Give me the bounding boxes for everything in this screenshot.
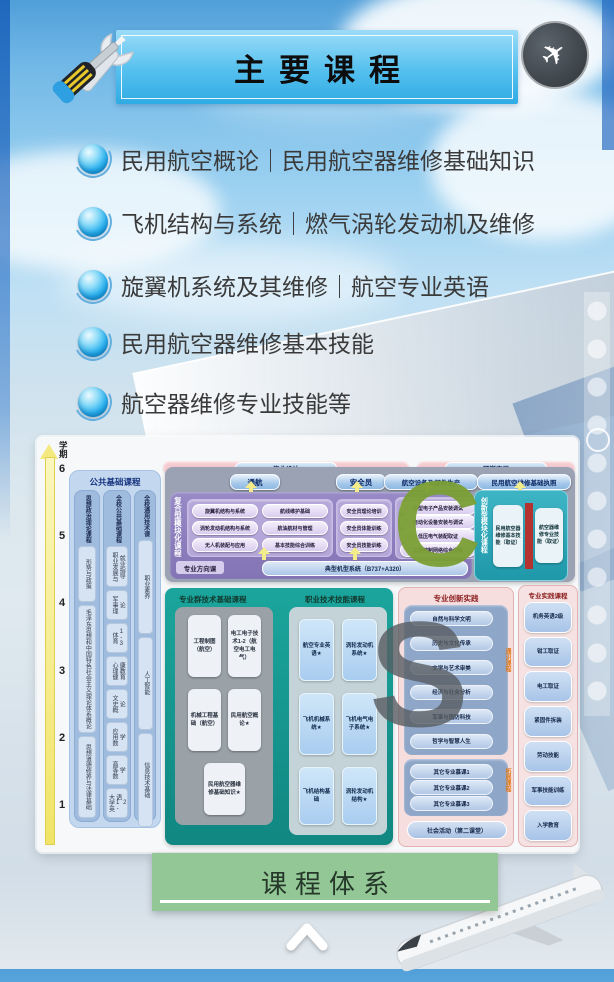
tech-skills-panel: 专业群技术基础课程 职业技术技能课程 工程制图（航空） 电工电子技术1-2（航空… xyxy=(165,588,393,845)
course-pill: 涡轮发动机结构与系统 xyxy=(192,521,258,535)
dot-decoration-strip xyxy=(584,292,610,716)
page: { "header": { "title": "主要课程" }, "course… xyxy=(0,0,614,969)
chevron-up-icon[interactable] xyxy=(283,918,331,956)
left-edge-strip xyxy=(0,0,10,540)
course-pill: 自动化设备安装与调试 xyxy=(400,515,476,529)
course-item: 飞机结构与系统｜燃气涡轮发动机及维修 xyxy=(78,200,535,244)
course-box: 大学英语1-2 xyxy=(106,788,127,818)
orb-bullet-icon xyxy=(78,327,108,357)
red-divider xyxy=(525,503,533,569)
course-box: 民用航空器维修基础知识★ xyxy=(204,763,245,815)
direction-label: 专业方向课 xyxy=(176,561,224,574)
orb-bullet-icon xyxy=(78,270,108,300)
axis-tick: 1 xyxy=(56,799,68,811)
course-box: 飞机结构基础 xyxy=(299,767,334,825)
course-pill: 哲学与智慧人生 xyxy=(410,734,493,749)
direction-course: 典型机型系统（B737+A320） xyxy=(262,561,468,576)
panel-title: 创新型模块化课程 xyxy=(479,497,487,574)
tech-basic-subpanel: 工程制图（航空） 电工电子技术1-2（航空电工电气） 机械工程基础（航空） 民用… xyxy=(175,607,273,825)
course-pill: 自然与科学文明 xyxy=(410,611,493,626)
section-header-banner: 主要课程 xyxy=(116,30,518,104)
axis-tick: 6 xyxy=(56,463,68,475)
course-item: 旋翼机系统及其维修｜航空专业英语 xyxy=(78,263,489,307)
curriculum-diagram: 学期 654321 公共基础课程 思想政治理论课程 形势与政策毛泽东思想和中国特… xyxy=(37,437,578,852)
course-box: 入学教育 xyxy=(524,810,572,841)
course-box: 军事技能训练 xyxy=(524,776,572,807)
course-box: 毛泽东思想和中国特色社会主义理论体系概论 xyxy=(78,605,97,733)
general-courses-label: 通识课程 xyxy=(503,648,510,672)
course-label: 民用航空概论｜民用航空器维修基础知识 xyxy=(121,142,535,176)
course-pill: 文学与艺术审美 xyxy=(410,660,493,675)
course-box: 涡轮发动机系统★ xyxy=(342,619,377,681)
public-basic-panel: 公共基础课程 思想政治理论课程 形势与政策毛泽东思想和中国特色社会主义理论体系概… xyxy=(69,470,161,828)
course-pill: 其它专业慕课3 xyxy=(410,796,493,811)
arrow-up xyxy=(355,488,359,492)
course-box: 航空专业英语★ xyxy=(299,619,334,681)
course-pill: 低压电气装配取证 xyxy=(400,529,476,543)
course-pill: 旋翼机结构与系统 xyxy=(192,504,258,518)
course-pill: 无人机装配与应用 xyxy=(192,538,258,552)
course-box: 体育1-3 xyxy=(106,623,127,653)
course-pill: 航线维护基础 xyxy=(262,504,328,518)
course-box: 劳动技能 xyxy=(524,741,572,772)
panel-title: 专业实践课程 xyxy=(519,590,577,600)
course-label: 旋翼机系统及其维修｜航空专业英语 xyxy=(121,268,489,302)
course-box: 机械工程基础（航空） xyxy=(188,689,221,751)
course-pill: 经济与社会分析 xyxy=(410,685,493,700)
axis-label: 学期 xyxy=(58,441,68,458)
column-ideology: 思想政治理论课程 形势与政策毛泽东思想和中国特色社会主义理论体系概论思想道德修养… xyxy=(74,490,100,822)
course-pill: 安全员技能训练 xyxy=(340,538,388,552)
airplane-icon: ✈ xyxy=(536,36,574,75)
innovation-practice-panel: 专业创新实践 自然与科学文明历史与文化传承文学与艺术审美经济与社会分析军事与国防… xyxy=(398,587,514,847)
column-title: 全校公共基础课程 xyxy=(114,495,121,543)
panel-title: 专业创新实践 xyxy=(399,593,513,604)
cert-course: 航空器维修专业技能（取证） xyxy=(535,508,563,563)
arrow-up xyxy=(262,554,266,560)
course-pill: 安全员理论培训 xyxy=(340,504,388,518)
course-box: 形势与政策 xyxy=(78,546,97,602)
social-activity-pill: 社会活动（第二课堂） xyxy=(407,821,507,839)
course-box: 涡轮发动机结构★ xyxy=(342,767,377,825)
panel-title: 职业技术技能课程 xyxy=(305,594,365,605)
logo-badge[interactable]: ✈ xyxy=(521,21,589,89)
course-pill: 其它专业慕课2 xyxy=(410,780,493,795)
general-courses-group: 自然与科学文明历史与文化传承文学与艺术审美经济与社会分析军事与国防科技哲学与智慧… xyxy=(404,605,508,755)
composite-group-safety: 安全员理论培训安全员体能训练安全员技能训练 xyxy=(336,499,392,557)
course-box: 工程制图（航空） xyxy=(188,615,221,677)
course-system-button-label: 课程体系 xyxy=(261,864,397,901)
course-pill: 其它专业慕课1 xyxy=(410,764,493,779)
course-box: 电工电子技术1-2（航空电工电气） xyxy=(228,615,261,677)
practice-courses-list: 机务英语2级钳工取证电工取证紧固件拆装劳动技能军事技能训练入学教育 xyxy=(524,602,572,841)
column-general: 全校公共基础课程 职业发展与就业指导军事理论体育1-3心理健康教育文史概论应用数… xyxy=(103,490,132,822)
course-pill: 小型电子产品安装调试 xyxy=(400,501,476,515)
course-pill: 航油航材与管理 xyxy=(262,521,328,535)
composite-module-panel: 复合型模块化课程 旋翼机结构与系统涡轮发动机结构与系统无人机装配与应用 航线维护… xyxy=(170,492,472,579)
course-pill: 历史与文化传承 xyxy=(410,636,493,651)
innovation-module-panel: 创新型模块化课程 民用航空器维修基本技能（取证） 航空器维修专业技能（取证） xyxy=(474,490,568,581)
arrow-up xyxy=(425,488,429,492)
arrow-up xyxy=(249,488,253,492)
axis-tick: 2 xyxy=(56,732,68,744)
course-label: 民用航空器维修基本技能 xyxy=(121,325,374,359)
course-box: 心理健康教育 xyxy=(106,656,127,686)
cert-course: 民用航空器维修基本技能（取证） xyxy=(493,505,523,567)
course-box: 飞机电气电子系统★ xyxy=(342,693,377,755)
course-box: 机务英语2级 xyxy=(524,602,572,633)
public-basic-columns: 思想政治理论课程 形势与政策毛泽东思想和中国特色社会主义理论体系概论思想道德修养… xyxy=(74,490,156,822)
course-box: 军事理论 xyxy=(106,590,127,620)
course-item: 民用航空概论｜民用航空器维修基础知识 xyxy=(78,137,535,181)
button-underline xyxy=(160,900,490,903)
axis-arrow xyxy=(45,457,55,845)
column-title: 思想政治理论课程 xyxy=(83,495,90,543)
axis-ticks: 654321 xyxy=(56,463,68,811)
course-item: 民用航空器维修基本技能 xyxy=(78,320,374,364)
course-box: 钳工取证 xyxy=(524,637,572,668)
course-pill: 基本技能综合训练 xyxy=(262,538,328,552)
course-label: 航空器维修专业技能等 xyxy=(121,385,351,419)
course-box: 民用航空概论★ xyxy=(228,689,261,751)
orb-bullet-icon xyxy=(78,144,108,174)
arrow-up xyxy=(353,554,357,560)
page-title: 主要课程 xyxy=(220,45,414,90)
panel-title: 专业群技术基础课程 xyxy=(179,594,247,605)
axis-tick: 3 xyxy=(56,665,68,677)
composite-group-electronics: 小型电子产品安装调试自动化设备安装与调试低压电气装配取证工业控制网络综合训练 xyxy=(395,497,481,559)
orb-bullet-icon xyxy=(78,207,108,237)
course-box: 文史概论 xyxy=(106,689,127,719)
course-box: 思想道德修养与法律基础 xyxy=(78,736,97,818)
practice-courses-panel: 专业实践课程 机务英语2级钳工取证电工取证紧固件拆装劳动技能军事技能训练入学教育 xyxy=(518,585,578,847)
course-pill: 安全员体能训练 xyxy=(340,521,388,535)
axis-tick: 4 xyxy=(56,597,68,609)
course-box: 飞机机械系统★ xyxy=(299,693,334,755)
course-box: 高等数学 xyxy=(106,755,127,785)
panel-title: 公共基础课程 xyxy=(70,476,160,488)
course-item: 航空器维修专业技能等 xyxy=(78,380,351,424)
expansion-courses-group: 其它专业慕课1其它专业慕课2其它专业慕课3 xyxy=(404,759,508,816)
course-box: 紧固件拆装 xyxy=(524,706,572,737)
course-box: 信息技术基础 xyxy=(138,733,153,827)
right-edge-strip xyxy=(602,0,614,150)
orb-bullet-icon xyxy=(78,387,108,417)
course-box: 应用数学 xyxy=(106,722,127,752)
course-box: 电工取证 xyxy=(524,671,572,702)
ring-decoration xyxy=(586,428,610,452)
course-system-button[interactable]: 课程体系 xyxy=(152,853,498,911)
column-title: 全校通用技术课 xyxy=(142,495,149,537)
course-box: 职业发展与就业指导 xyxy=(106,546,127,587)
course-box: 人工智能 xyxy=(138,637,153,731)
course-pill: 工业控制网络综合训练 xyxy=(400,543,476,557)
expansion-courses-label: 拓展课程 xyxy=(503,768,510,792)
course-pill: 军事与国防科技 xyxy=(410,709,493,724)
course-box: 职业素养 xyxy=(138,540,153,634)
vocational-subpanel: 航空专业英语★ 涡轮发动机系统★ 飞机机械系统★ 飞机电气电子系统★ 飞机结构基… xyxy=(289,607,387,835)
course-label: 飞机结构与系统｜燃气涡轮发动机及维修 xyxy=(121,205,535,239)
axis-tick: 5 xyxy=(56,530,68,542)
column-tech: 全校通用技术课 职业素养人工智能信息技术基础 xyxy=(134,490,156,822)
tools-icon xyxy=(48,20,152,120)
